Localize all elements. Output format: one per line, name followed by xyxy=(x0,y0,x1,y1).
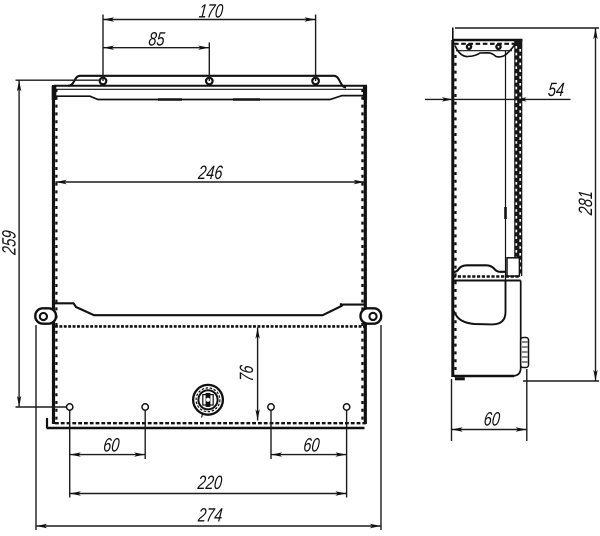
svg-text:246: 246 xyxy=(196,162,224,183)
svg-text:170: 170 xyxy=(198,0,225,21)
svg-text:54: 54 xyxy=(547,79,565,100)
svg-text:220: 220 xyxy=(196,472,224,493)
svg-text:60: 60 xyxy=(102,434,121,455)
svg-text:60: 60 xyxy=(302,434,321,455)
svg-text:85: 85 xyxy=(147,28,166,49)
svg-text:259: 259 xyxy=(0,229,20,257)
svg-text:76: 76 xyxy=(236,364,257,383)
svg-text:281: 281 xyxy=(575,190,596,217)
svg-text:274: 274 xyxy=(196,504,223,525)
svg-text:60: 60 xyxy=(483,409,502,430)
